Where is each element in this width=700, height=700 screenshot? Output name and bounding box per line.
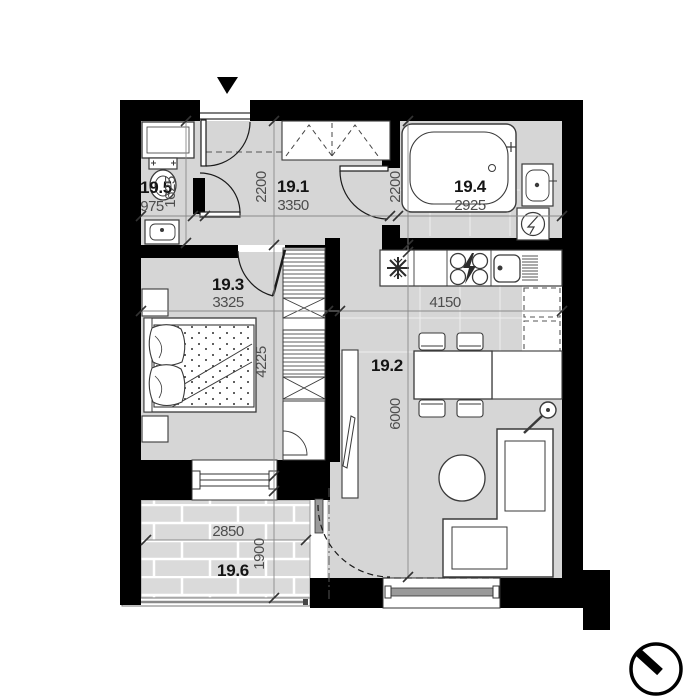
wall-bedroom-balcony-left [141, 460, 192, 500]
dim-19-3-depth: 4225 [253, 346, 270, 378]
room-label-19-1: 19.1 [277, 177, 309, 196]
wall-right [562, 100, 583, 578]
entrance-opening [200, 100, 250, 121]
dim-19-1-depth: 2200 [253, 171, 270, 203]
wall-bedroom-living [325, 238, 340, 462]
wall-hall-bedroom-left [141, 245, 238, 258]
floor-plan: 19.1 3350 2200 19.2 4150 6000 19.3 3325 … [0, 0, 700, 700]
dim-19-2-depth: 6000 [387, 398, 404, 430]
wall-bottom-left [310, 578, 383, 608]
wardrobe-rail [283, 250, 325, 298]
wc-washbasin-icon [145, 220, 179, 244]
floor-plan-page: 19.1 3350 2200 19.2 4150 6000 19.3 3325 … [0, 0, 700, 700]
nightstand [142, 416, 168, 442]
north-indicator-icon [631, 644, 681, 694]
dim-19-6-depth: 1900 [251, 538, 268, 570]
dim-19-4-width: 2925 [454, 197, 486, 214]
wall-bedroom-balcony-right [277, 460, 330, 500]
dim-19-5-width: 975 [140, 198, 164, 215]
room-label-19-4: 19.4 [454, 177, 487, 196]
nightstand [142, 289, 168, 316]
dim-19-6-width: 2850 [212, 523, 244, 540]
bathroom-washbasin-icon [522, 164, 557, 206]
wall-bottom-right [500, 578, 597, 608]
room-label-19-3: 19.3 [212, 275, 244, 294]
tv-stand [342, 350, 358, 498]
kitchen [380, 250, 562, 286]
wall-corner-step [583, 570, 610, 630]
room-label-19-2: 19.2 [371, 356, 403, 375]
wardrobe-rail [283, 330, 325, 377]
dining-table [414, 351, 492, 399]
dim-19-5-depth: 1625 [162, 176, 179, 208]
kitchen-wall-cabinets [522, 285, 562, 355]
living-room-window [383, 578, 500, 608]
dim-19-1-width: 3350 [277, 197, 309, 214]
wall-wc-stub [193, 178, 205, 214]
hall-wardrobe [282, 121, 390, 160]
dim-19-3-width: 3325 [212, 294, 244, 311]
wall-left [120, 100, 141, 605]
sideboard [492, 351, 562, 399]
pillow [149, 365, 185, 406]
cabinet [283, 401, 325, 460]
entrance-arrow-icon [217, 77, 238, 94]
wall-top-right [250, 100, 583, 121]
room-label-19-6: 19.6 [217, 561, 249, 580]
double-bed [144, 318, 256, 412]
balcony-floor [141, 500, 310, 599]
dim-19-4-depth: 2200 [387, 171, 404, 203]
pillow [149, 325, 185, 366]
bedroom-wardrobe [283, 248, 325, 460]
bedroom-window [192, 460, 277, 500]
dim-19-2-width: 4150 [429, 294, 461, 311]
balcony-railing [122, 598, 310, 606]
washing-machine-icon [517, 208, 549, 240]
fridge-icon [387, 257, 409, 279]
coffee-table [439, 455, 485, 501]
